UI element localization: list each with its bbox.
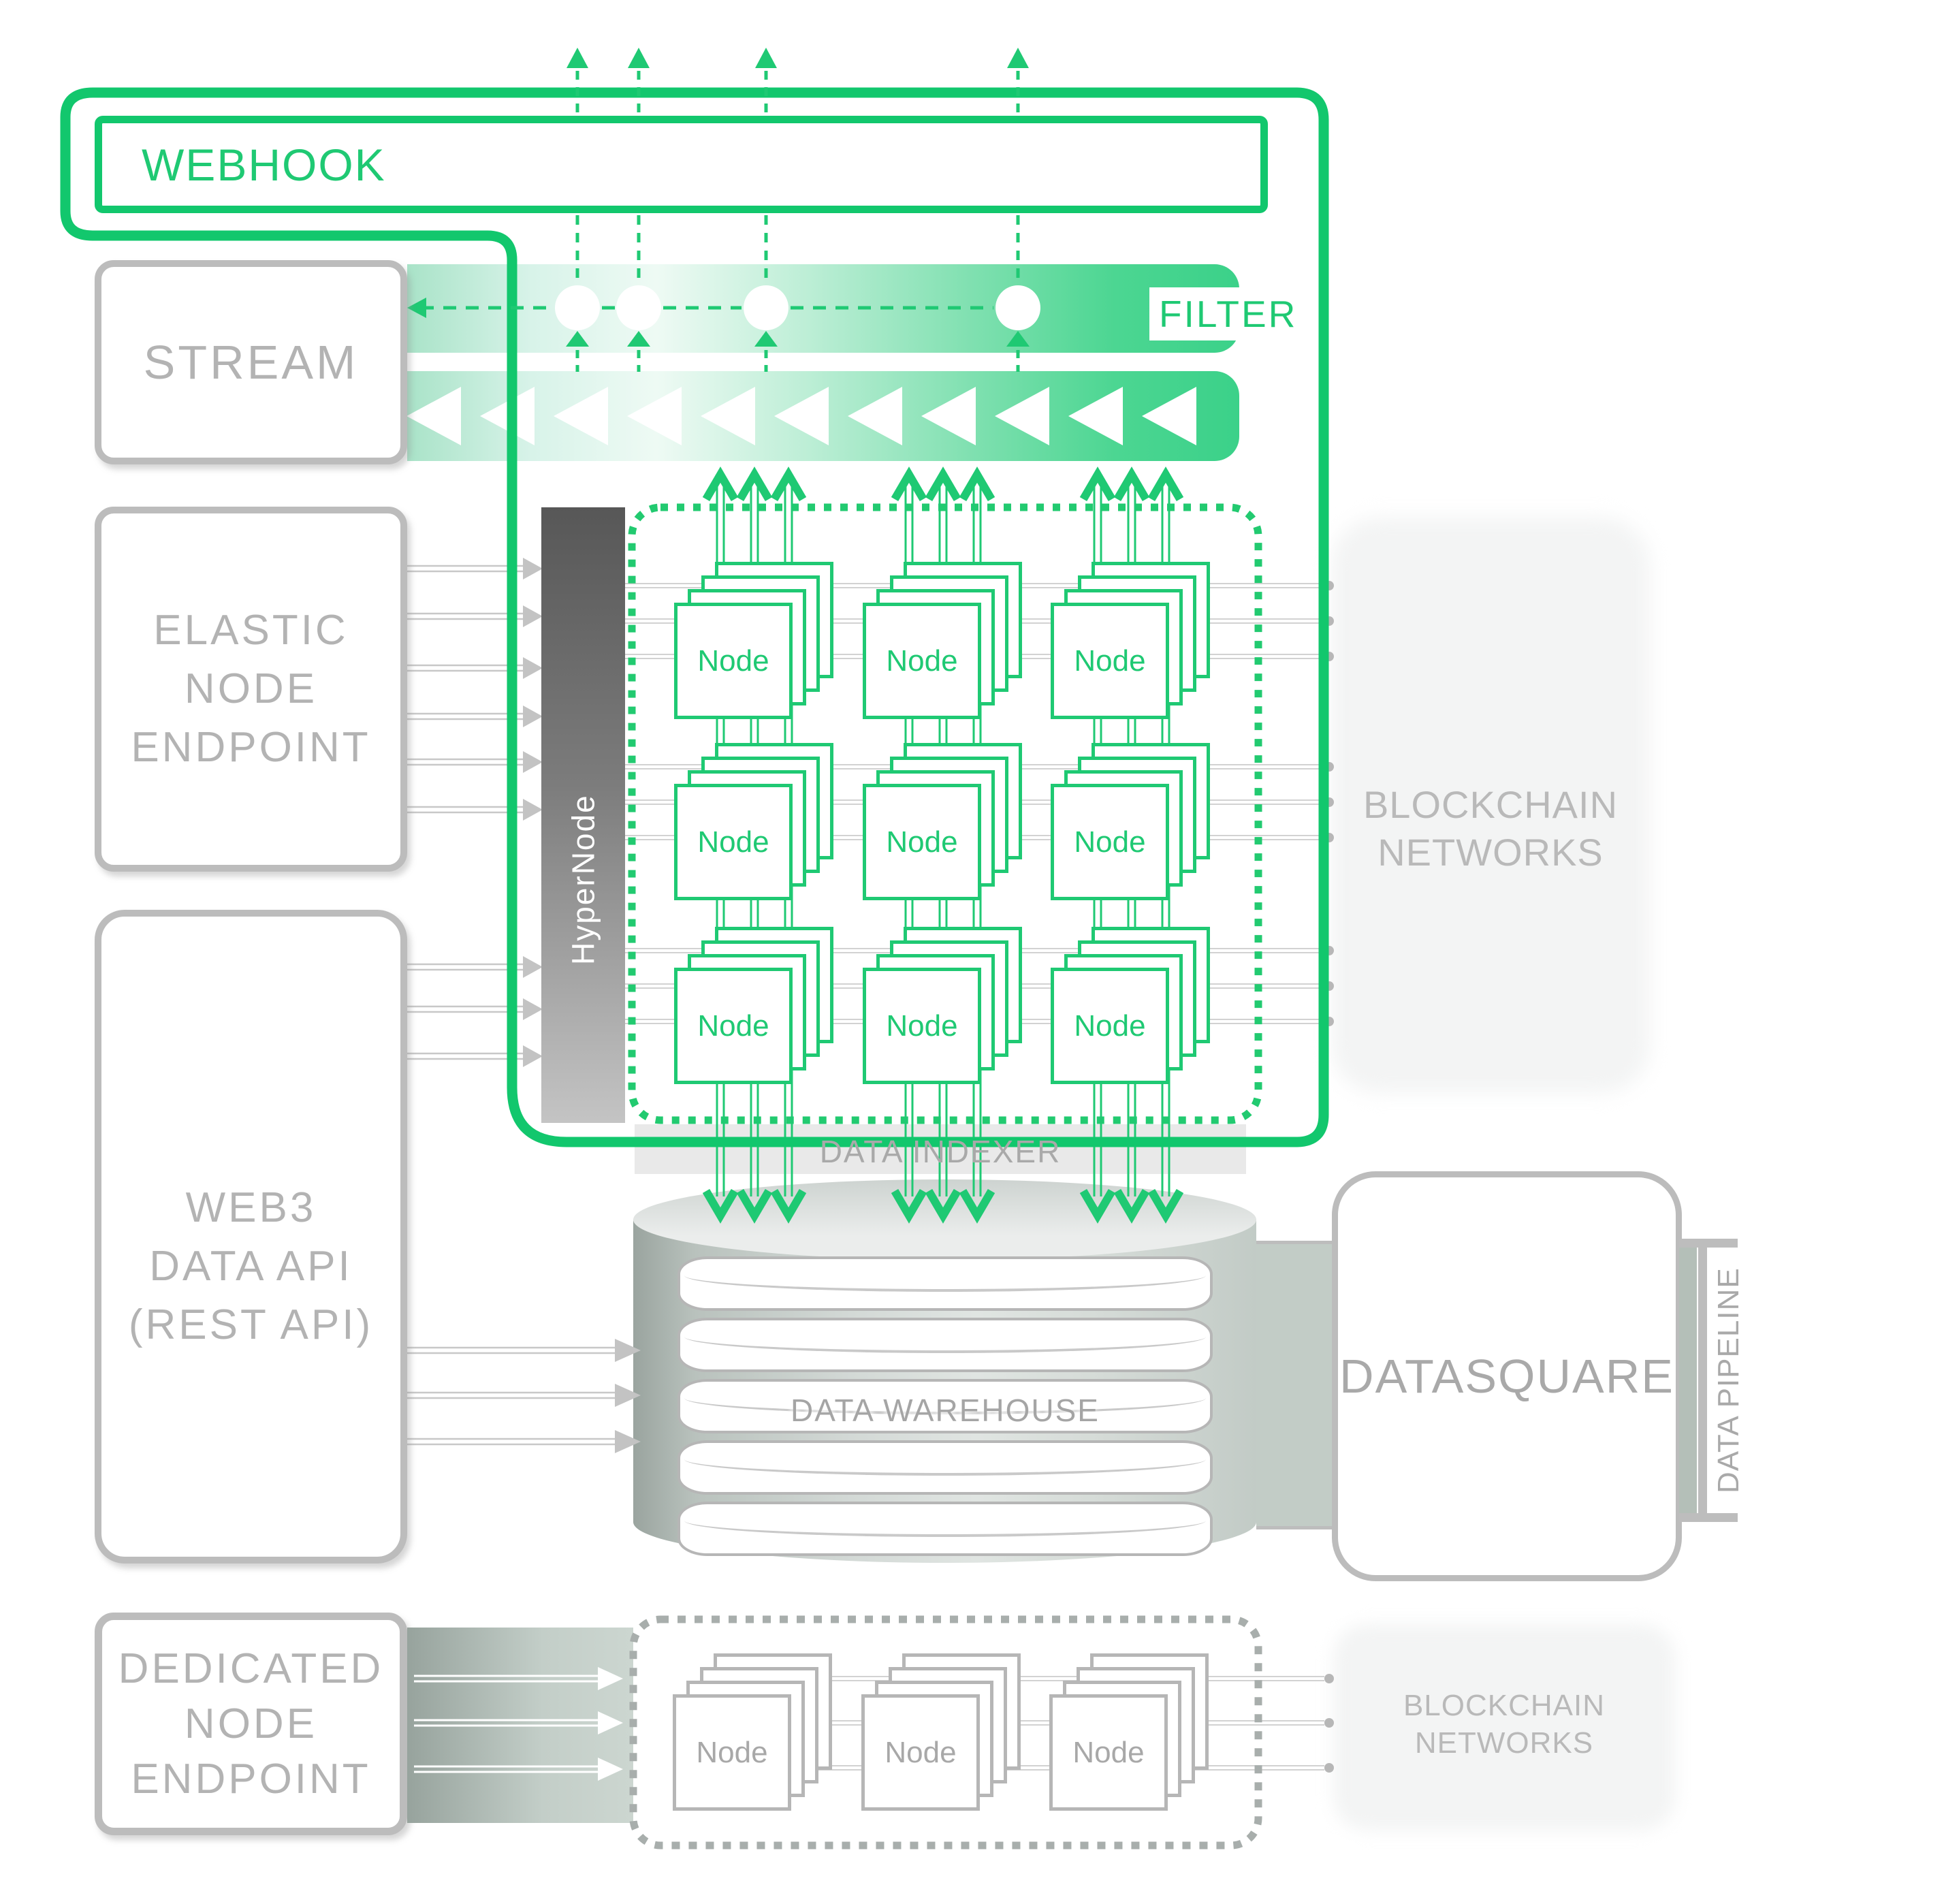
blockchain-networks-label-bottom: BLOCKCHAIN NETWORKS	[1333, 1687, 1675, 1762]
dedicated-node-endpoint-box: DEDICATED NODE ENDPOINT	[95, 1613, 407, 1835]
dedicated-label-line: ENDPOINT	[131, 1751, 370, 1807]
node-stack: Node	[673, 1653, 832, 1811]
data-pipeline-label: DATA PIPELINE	[1705, 1241, 1753, 1520]
datasquare-label: DATASQUARE	[1339, 1349, 1674, 1403]
node-label: Node	[697, 1009, 769, 1043]
warehouse-datasquare-connector	[1256, 1241, 1333, 1529]
node-stack: Node	[674, 743, 833, 900]
node-label: Node	[885, 1736, 956, 1770]
elastic-label-line: NODE	[185, 660, 317, 718]
node-label: Node	[886, 644, 957, 678]
node-label: Node	[1072, 1736, 1144, 1770]
node-stack: Node	[863, 927, 1022, 1084]
node-stack: Node	[674, 927, 833, 1084]
node-label: Node	[886, 1009, 957, 1043]
node-label: Node	[886, 825, 957, 859]
web3-data-api-box: WEB3 DATA API (REST API)	[95, 910, 407, 1564]
label-line: NETWORKS	[1333, 1724, 1675, 1762]
node-label: Node	[1074, 644, 1145, 678]
webhook-box: WEBHOOK	[95, 116, 1268, 213]
node-label: Node	[697, 644, 769, 678]
data-warehouse-label: DATA WAREHOUSE	[678, 1392, 1213, 1429]
filter-label: FILTER	[1149, 292, 1297, 336]
warehouse-disc	[678, 1502, 1213, 1556]
label-line: BLOCKCHAIN	[1331, 781, 1650, 829]
dedicated-label-line: DEDICATED	[118, 1641, 384, 1696]
elastic-label-line: ENDPOINT	[131, 718, 370, 777]
node-label: Node	[696, 1736, 767, 1770]
stream-flow-triangles	[407, 371, 1239, 461]
web3-label-line: DATA API	[149, 1237, 352, 1296]
node-stack: Node	[861, 1653, 1021, 1811]
web3-label-line: WEB3	[186, 1179, 317, 1237]
node-stack: Node	[674, 562, 833, 719]
architecture-diagram: HyperNode Node Node Node Node Node Node	[0, 0, 1944, 1904]
node-stack: Node	[1051, 743, 1210, 900]
node-stack: Node	[1049, 1653, 1209, 1811]
node-stack: Node	[1051, 927, 1210, 1084]
data-warehouse-cylinder-top	[633, 1179, 1256, 1260]
label-line: BLOCKCHAIN	[1333, 1687, 1675, 1724]
elastic-label-line: ELASTIC	[153, 601, 348, 660]
data-pipeline-bar	[1679, 1241, 1697, 1520]
stream-flow-bar	[407, 371, 1239, 461]
warehouse-disc	[678, 1440, 1213, 1495]
warehouse-disc	[678, 1318, 1213, 1372]
node-stack: Node	[863, 562, 1022, 719]
dedicated-flow-band	[407, 1628, 633, 1823]
node-stack: Node	[863, 743, 1022, 900]
webhook-label: WEBHOOK	[102, 139, 386, 191]
blockchain-networks-label-top: BLOCKCHAIN NETWORKS	[1331, 781, 1650, 876]
filter-bar	[407, 264, 1239, 353]
node-label: Node	[1074, 1009, 1145, 1043]
stream-box: STREAM	[95, 260, 407, 464]
elastic-node-endpoint-box: ELASTIC NODE ENDPOINT	[95, 507, 407, 872]
node-stack: Node	[1051, 562, 1210, 719]
node-label: Node	[1074, 825, 1145, 859]
label-line: NETWORKS	[1331, 829, 1650, 876]
web3-label-line: (REST API)	[129, 1296, 373, 1354]
stream-label: STREAM	[144, 333, 359, 392]
warehouse-disc	[678, 1256, 1213, 1311]
filter-label-notch: FILTER	[1149, 287, 1280, 340]
node-label: Node	[697, 825, 769, 859]
dedicated-label-line: NODE	[185, 1696, 317, 1751]
data-indexer-label: DATA INDEXER	[635, 1133, 1246, 1170]
hypernode-label: HyperNode	[541, 572, 625, 1188]
datasquare-box: DATASQUARE	[1332, 1171, 1682, 1581]
